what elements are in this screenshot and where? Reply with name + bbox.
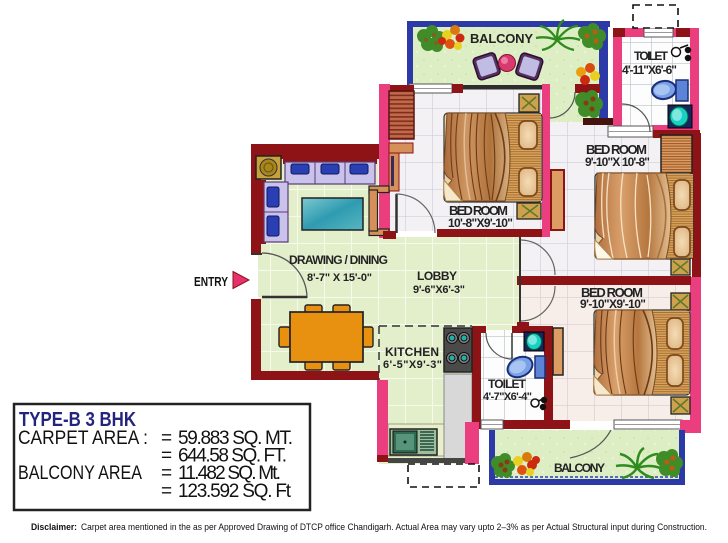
svg-text:9'-10"X9'-10": 9'-10"X9'-10" — [580, 297, 646, 311]
svg-text:10'-8"X9'-10": 10'-8"X9'-10" — [448, 216, 513, 230]
svg-text:=: = — [161, 481, 172, 502]
svg-text:TOILET: TOILET — [488, 377, 527, 391]
svg-text:123.592 SQ. Ft: 123.592 SQ. Ft — [178, 481, 292, 502]
svg-text:DRAWING / DINING: DRAWING / DINING — [289, 253, 388, 267]
svg-text:BALCONY: BALCONY — [554, 461, 605, 475]
svg-text:Disclaimer:: Disclaimer: — [31, 522, 77, 532]
svg-text:BALCONY AREA: BALCONY AREA — [18, 463, 142, 484]
svg-text:9'-6"X6'-3": 9'-6"X6'-3" — [413, 284, 465, 296]
svg-text:4'-11"X6'-6": 4'-11"X6'-6" — [622, 63, 677, 77]
svg-text:ENTRY: ENTRY — [194, 274, 228, 289]
svg-text:TOILET: TOILET — [634, 49, 669, 63]
svg-text:6'-5"X9'-3": 6'-5"X9'-3" — [383, 359, 442, 371]
svg-text:LOBBY: LOBBY — [417, 269, 457, 283]
svg-text:8'-7" X 15'-0": 8'-7" X 15'-0" — [307, 272, 372, 284]
svg-text:9'-10"X 10'-8": 9'-10"X 10'-8" — [585, 155, 650, 169]
svg-text:KITCHEN: KITCHEN — [385, 345, 439, 359]
svg-text:4'-7"X6'-4": 4'-7"X6'-4" — [483, 391, 532, 403]
svg-text:BALCONY: BALCONY — [470, 31, 533, 46]
svg-text:CARPET AREA :: CARPET AREA : — [18, 428, 148, 449]
svg-text:Carpet area mentioned in the a: Carpet area mentioned in the as per Appr… — [81, 522, 707, 532]
